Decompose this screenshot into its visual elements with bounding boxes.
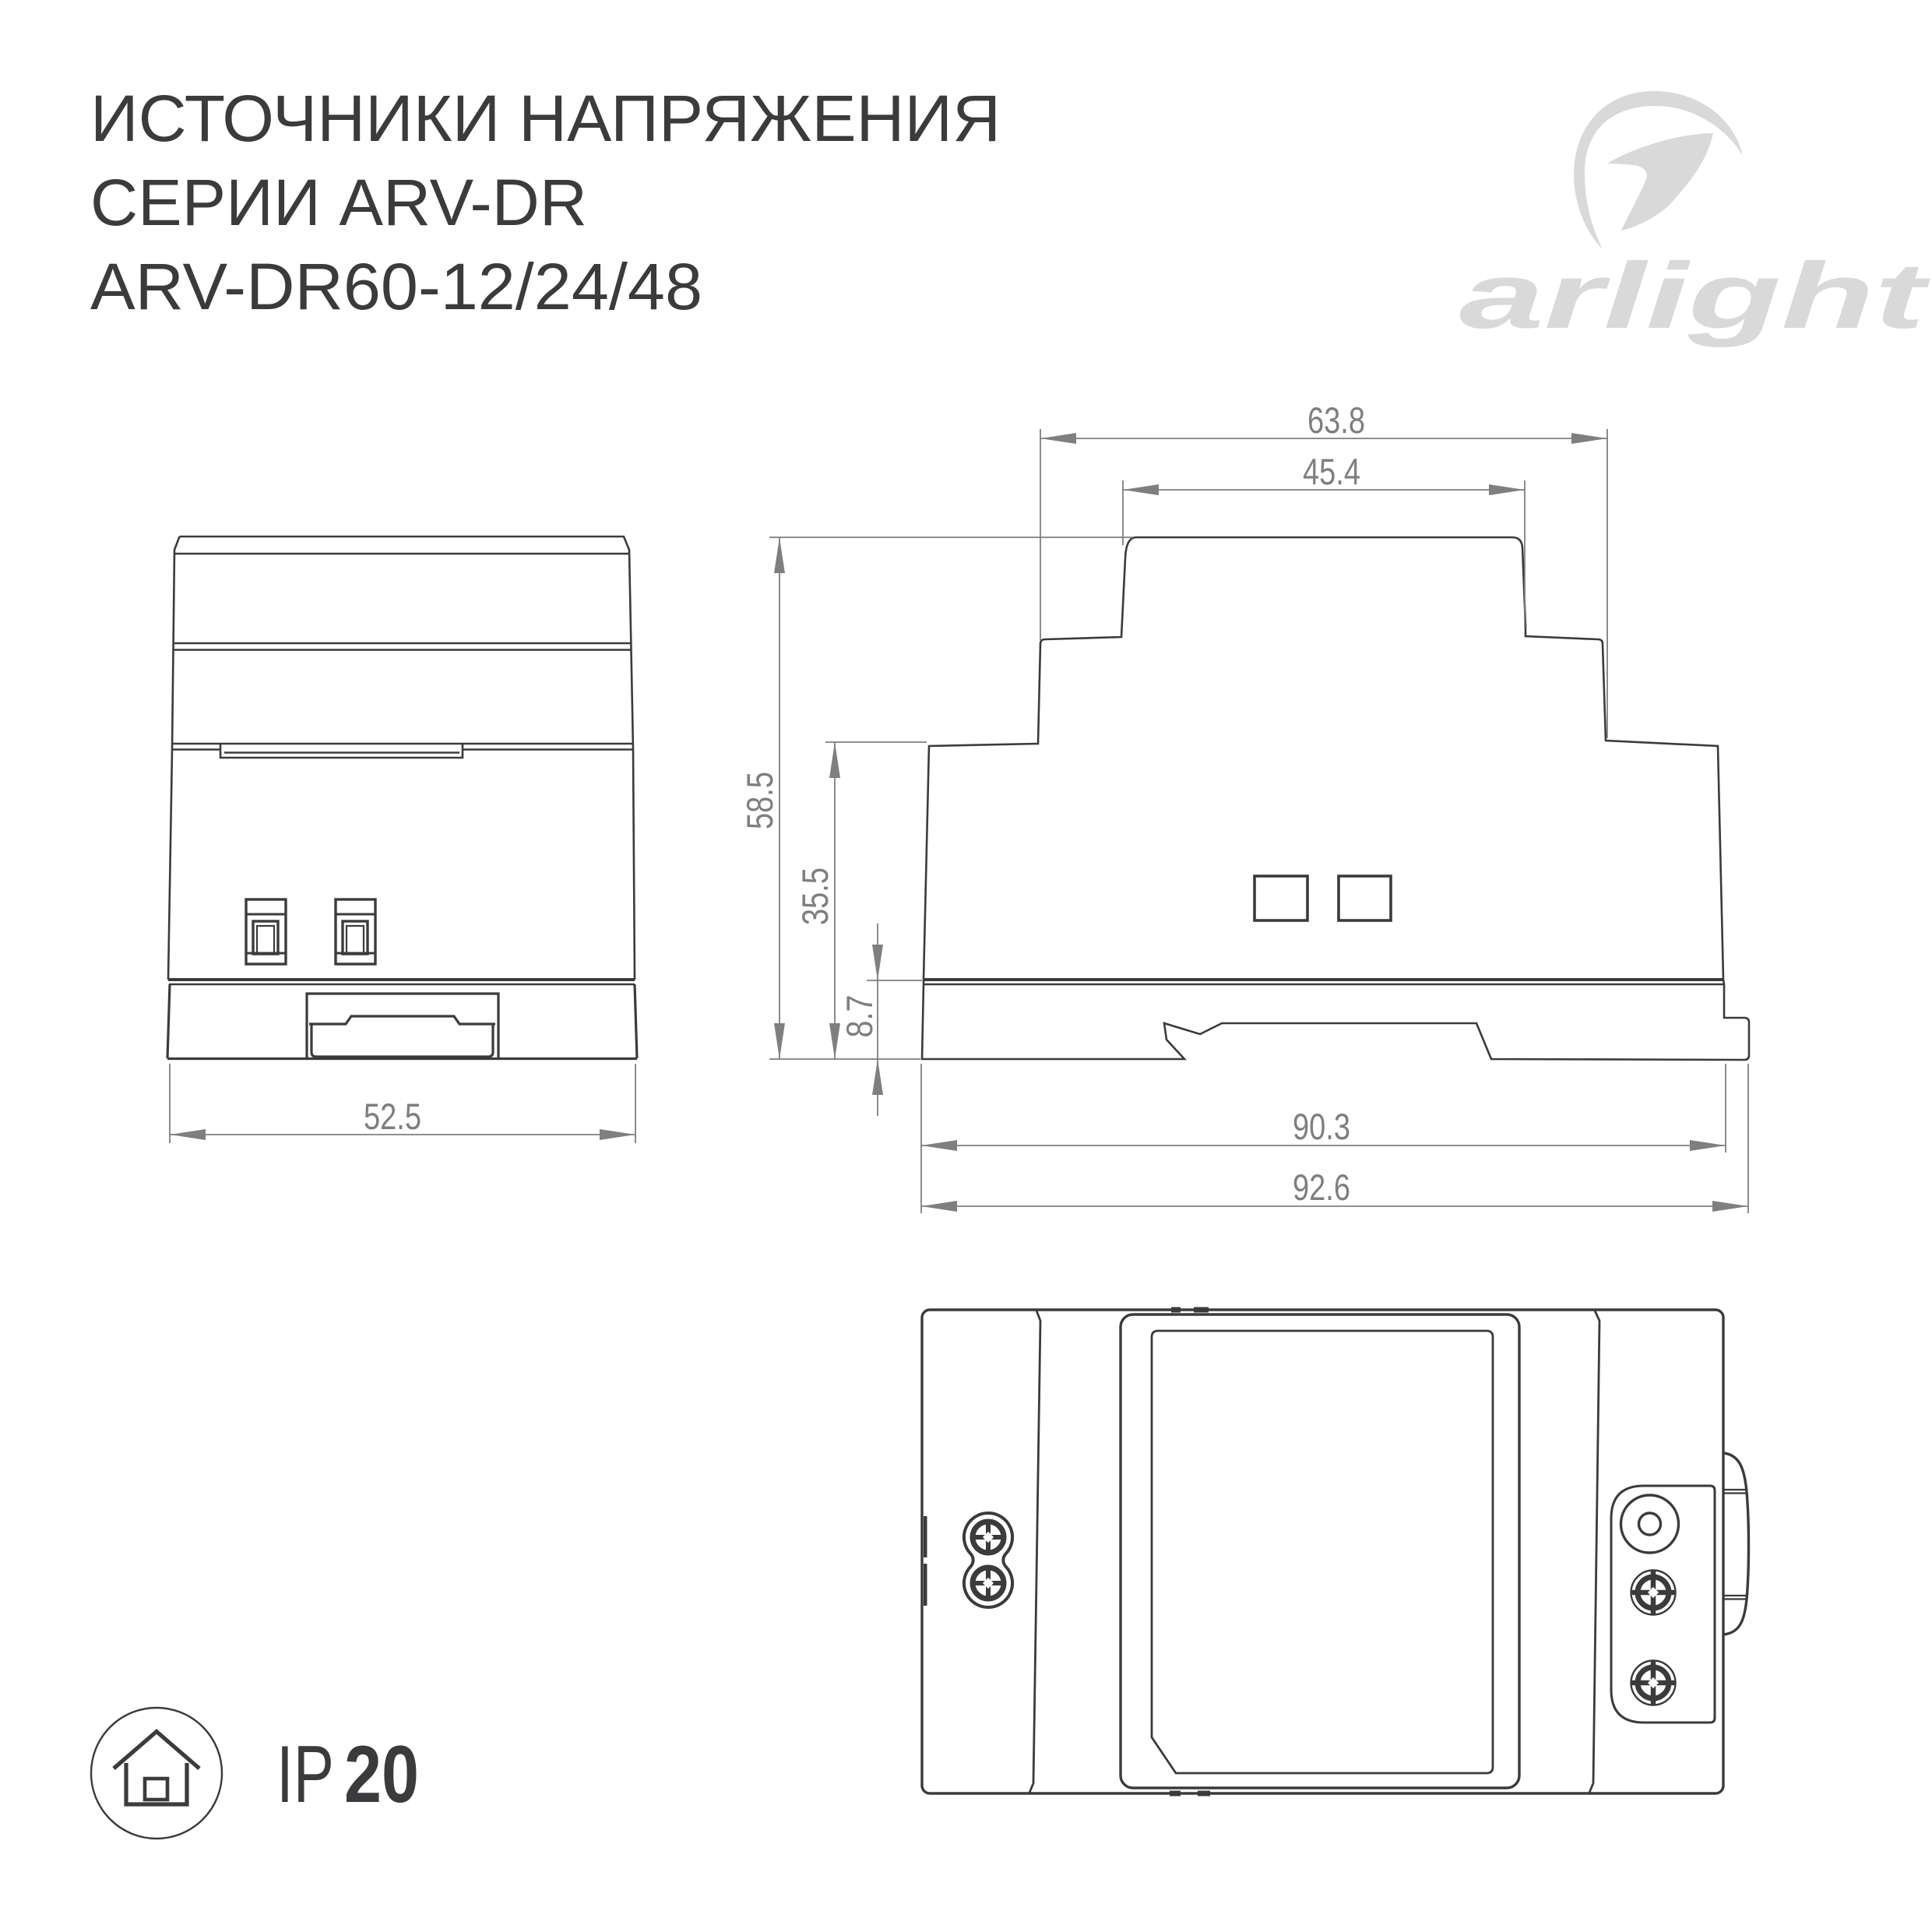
svg-text:ARV-DR60-12/24/48: ARV-DR60-12/24/48: [90, 250, 702, 323]
svg-text:СЕРИИ ARV-DR: СЕРИИ ARV-DR: [90, 166, 587, 239]
svg-text:IP: IP: [276, 1730, 334, 1820]
svg-text:8.7: 8.7: [839, 995, 880, 1038]
svg-text:ИСТОЧНИКИ НАПРЯЖЕНИЯ: ИСТОЧНИКИ НАПРЯЖЕНИЯ: [90, 82, 1001, 155]
svg-text:52.5: 52.5: [364, 1096, 421, 1137]
svg-text:35.5: 35.5: [794, 867, 836, 925]
svg-text:58.5: 58.5: [739, 772, 780, 829]
svg-text:63.8: 63.8: [1307, 399, 1365, 441]
svg-text:20: 20: [344, 1730, 419, 1820]
svg-text:45.4: 45.4: [1303, 451, 1360, 492]
svg-text:90.3: 90.3: [1293, 1106, 1350, 1147]
svg-text:92.6: 92.6: [1293, 1167, 1350, 1208]
svg-text:arlight: arlight: [1459, 244, 1931, 348]
